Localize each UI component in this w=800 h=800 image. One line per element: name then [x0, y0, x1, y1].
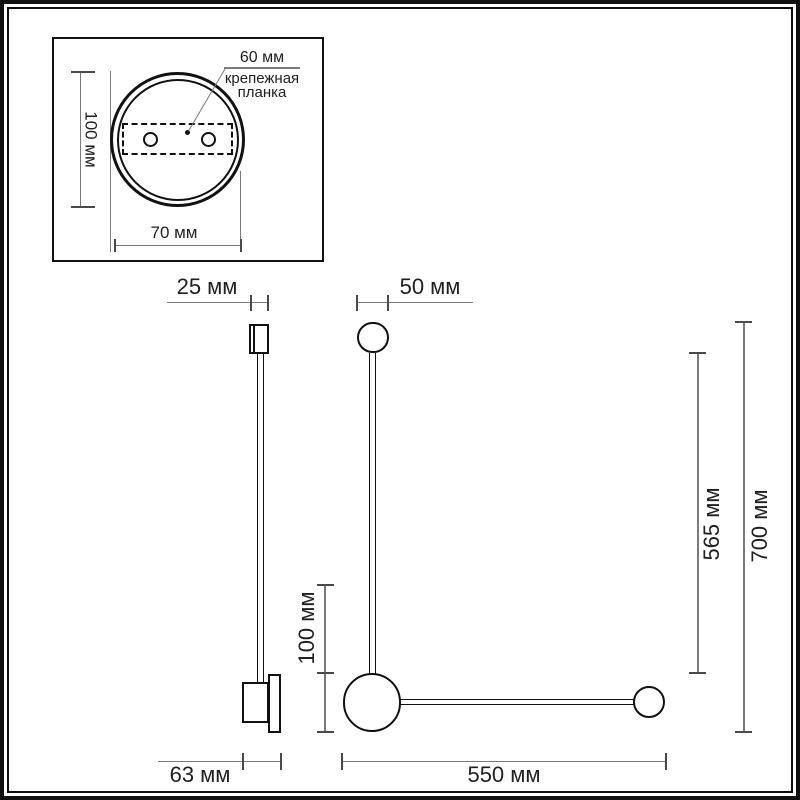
lamp-arm [400, 699, 635, 706]
screw-hole-right [201, 132, 216, 147]
base-diameter-dim-line [324, 585, 326, 732]
extension-line-left [110, 71, 111, 252]
lamp-head-front [357, 322, 389, 354]
side-mount-depth-label: 63 мм [165, 764, 235, 786]
arm-length-label: 550 мм [454, 764, 554, 786]
lamp-head-side-face-line [253, 326, 255, 352]
front-head-diameter-label: 50 мм [394, 276, 466, 298]
total-height-label: 700 мм [749, 486, 771, 566]
wall-mount-box [242, 682, 269, 724]
leader-underline [224, 67, 300, 68]
inset-width-dim-line [115, 245, 241, 246]
inset-height-tick-top [71, 71, 95, 73]
lamp-rod-side [257, 353, 264, 683]
front-head-diameter-tick-left [356, 295, 358, 311]
total-height-dim-line [743, 322, 745, 732]
base-diameter-tick-top [317, 584, 334, 586]
mounting-bracket-outline [122, 123, 233, 155]
inset-width-tick-right [240, 239, 242, 252]
side-head-depth-tick-left [250, 295, 252, 311]
arm-length-tick-left [341, 753, 343, 770]
lamp-base-front [343, 673, 402, 732]
total-height-tick-bottom [735, 731, 752, 733]
base-diameter-tick-bottom [317, 731, 334, 733]
inset-height-dim-label: 100 мм [83, 104, 100, 174]
inset-width-tick-left [114, 239, 116, 252]
lamp-rod-front [369, 353, 376, 675]
front-head-diameter-tick-right [387, 295, 389, 311]
screw-hole-left [143, 132, 158, 147]
rod-span-label: 565 мм [701, 484, 723, 564]
base-diameter-tick-mid [317, 672, 334, 674]
side-mount-depth-tick-right [280, 753, 282, 770]
arm-length-tick-right [665, 753, 667, 770]
side-head-depth-dim-line [167, 302, 269, 304]
side-head-depth-label: 25 мм [172, 276, 242, 298]
wall-mount-plate [268, 674, 282, 733]
dim-label-bracket-width: 60 мм [224, 51, 300, 65]
arm-end-cap [633, 686, 665, 718]
inset-width-dim-label: 70 мм [139, 224, 209, 241]
total-height-tick-top [735, 321, 752, 323]
side-mount-depth-tick-left [242, 753, 244, 770]
mounting-plate-inset: 60 мм крепежная планка 100 мм 70 мм [52, 37, 324, 262]
base-diameter-label: 100 мм [296, 588, 318, 668]
inset-height-tick-bottom [71, 206, 95, 208]
rod-span-tick-bottom [689, 672, 706, 674]
side-head-depth-tick-right [267, 295, 269, 311]
front-head-diameter-dim-line [356, 302, 473, 304]
lamp-head-side [249, 324, 269, 355]
bracket-annotation-line2: планка [214, 86, 310, 100]
rod-span-tick-top [689, 352, 706, 354]
